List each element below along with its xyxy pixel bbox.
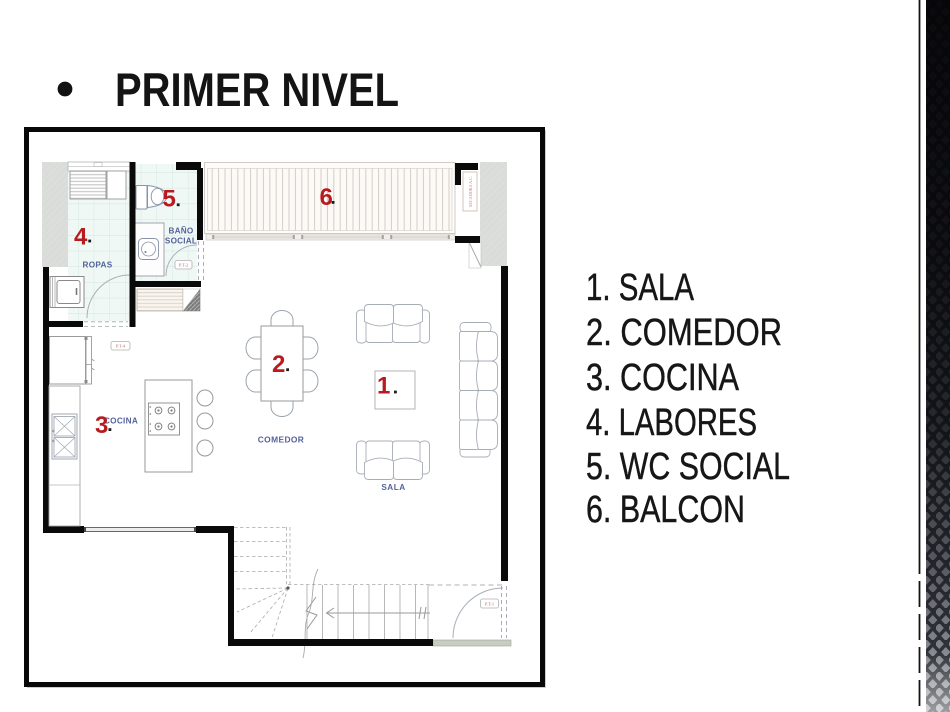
svg-text:6. BALCON: 6. BALCON: [586, 489, 745, 531]
svg-text:1: 1: [377, 373, 390, 400]
svg-text:4: 4: [74, 224, 88, 251]
svg-text:2. COMEDOR: 2. COMEDOR: [586, 312, 782, 354]
svg-text:1. SALA: 1. SALA: [586, 267, 695, 309]
svg-text:P.T-2: P.T-2: [179, 263, 188, 268]
svg-text:5: 5: [163, 186, 176, 213]
svg-text:SALA: SALA: [381, 483, 405, 492]
svg-text:3. COCINA: 3. COCINA: [586, 357, 740, 399]
svg-text:COMEDOR: COMEDOR: [258, 435, 305, 445]
svg-text:6: 6: [320, 184, 333, 211]
svg-text:3: 3: [95, 412, 108, 439]
svg-text:P.T-1: P.T-1: [485, 602, 494, 607]
svg-text:BAÑO: BAÑO: [169, 226, 194, 236]
svg-text:4. LABORES: 4. LABORES: [586, 402, 757, 444]
svg-text:5. WC SOCIAL: 5. WC SOCIAL: [586, 446, 790, 488]
svg-text:COCINA: COCINA: [104, 417, 138, 426]
svg-text:2: 2: [272, 351, 285, 378]
svg-text:ROPAS: ROPAS: [82, 261, 112, 270]
svg-text:SECADORA A.C.: SECADORA A.C.: [468, 176, 473, 207]
svg-text:P.T-4: P.T-4: [116, 344, 126, 349]
svg-text:SOCIAL: SOCIAL: [165, 237, 197, 246]
svg-text:PRIMER NIVEL: PRIMER NIVEL: [115, 63, 399, 116]
